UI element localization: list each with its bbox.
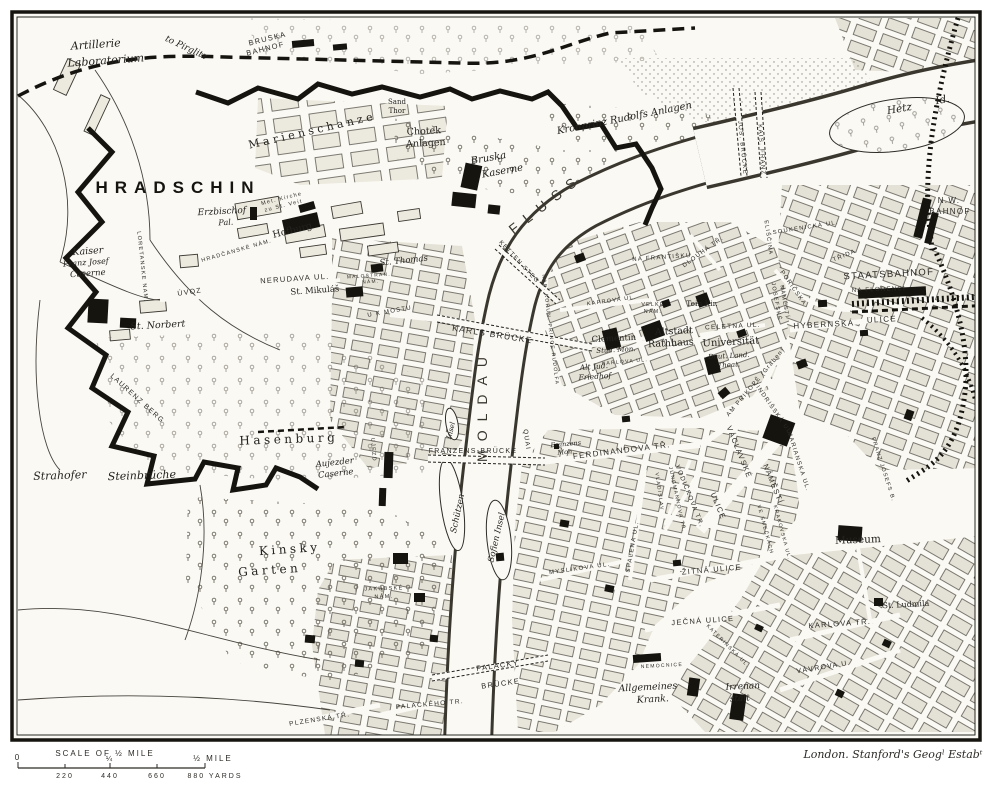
map-label-irrenan: Irrenan bbox=[724, 681, 760, 693]
map-label-thor: Thor bbox=[389, 107, 406, 115]
scale-yards-440: 440 bbox=[101, 773, 119, 780]
scale-tick-0: 0 bbox=[15, 753, 21, 762]
map-label-n-m: NÁM. bbox=[374, 593, 393, 601]
map-label-franzens-br-cke: FRANZENS-BRÜCKE bbox=[429, 447, 518, 455]
map-label-steinbr-che: Steinbrüche bbox=[108, 468, 177, 483]
map-label-altstadt: Altstadt bbox=[654, 325, 694, 338]
map-label-chotek: Chotek bbox=[406, 125, 441, 138]
map-label-velk: VELKÉ bbox=[641, 301, 664, 308]
map-label-anlagen: Anlagen bbox=[405, 137, 446, 150]
map-label-moldau: MOLDAU bbox=[474, 348, 490, 462]
map-label-tein-kir: Tein Kir. bbox=[686, 299, 718, 308]
prague-city-map: ArtillerieLaboratoriumto PirglitzBRUSKAB… bbox=[0, 0, 1000, 792]
map-label-n-w: N.W. bbox=[938, 196, 961, 205]
map-label-theat: Theat. bbox=[717, 360, 740, 369]
map-label-strahofer: Strahofer bbox=[33, 468, 87, 483]
scale-tick-half: ½ MILE bbox=[193, 754, 233, 763]
map-label-museum: Museum bbox=[835, 533, 881, 547]
map-label-krank: Krank. bbox=[636, 693, 670, 706]
scale-tick-quarter: ¼ bbox=[106, 754, 114, 763]
map-label-sand: Sand bbox=[388, 98, 406, 106]
map-label-jakubsk: JAKUBSKÉ bbox=[364, 584, 403, 592]
map-label-bahnof: BAHNOF bbox=[929, 207, 970, 216]
scale-yards-880: 880 YARDS bbox=[187, 773, 242, 780]
map-label-ulice: ULICE bbox=[867, 314, 897, 325]
publisher-imprint: London. Stanford's Geogˡ Estabᵗ bbox=[802, 748, 982, 761]
scale-yards-660: 660 bbox=[148, 773, 166, 780]
map-label-hradschin: HRADSCHIN bbox=[96, 178, 261, 197]
map-label-pal: Pal. bbox=[217, 218, 233, 228]
scale-yards-220: 220 bbox=[56, 773, 74, 780]
map-label-stalt: stalt bbox=[730, 693, 751, 704]
map-label-n-m: NÁM. bbox=[644, 308, 662, 315]
